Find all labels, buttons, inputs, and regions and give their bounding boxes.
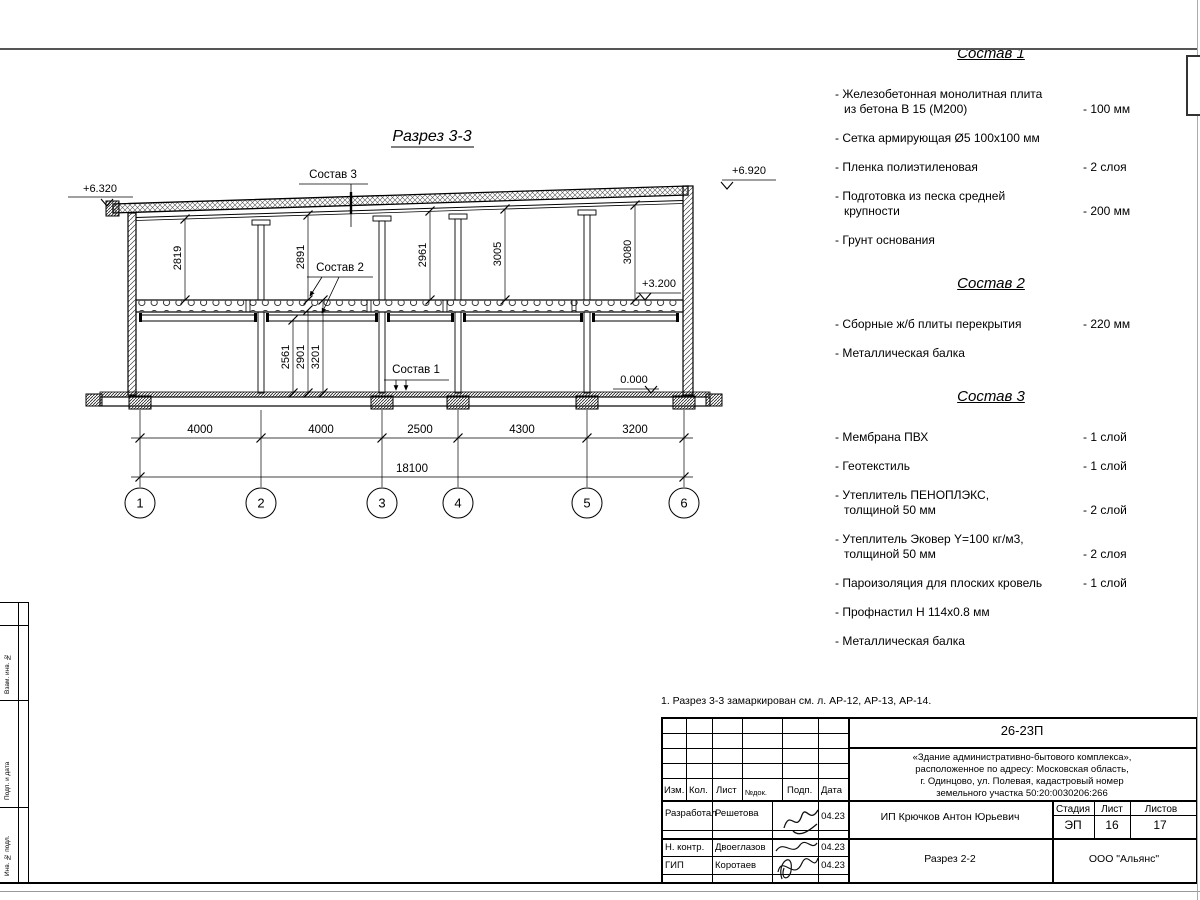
comp1-item-1: - Железобетонная монолитная плитаиз бето… bbox=[835, 87, 1147, 117]
frame-top bbox=[0, 48, 1197, 50]
stamp-podp: Подп. и дата bbox=[4, 708, 11, 800]
date-gip: 04.23 bbox=[818, 860, 848, 871]
axis-5: 5 bbox=[583, 496, 590, 511]
col-kol: Кол. bbox=[689, 785, 708, 796]
col-ndok: №док. bbox=[745, 787, 767, 798]
dim-2891: 2891 bbox=[295, 245, 307, 269]
elev-6320: +6.320 bbox=[83, 183, 117, 195]
drawing-sheet: Разрез 3-3 bbox=[0, 0, 1200, 900]
name-ncontrol: Двоеглазов bbox=[715, 842, 766, 853]
role-ncontrol: Н. контр. bbox=[665, 842, 704, 853]
col-izm: Изм. bbox=[664, 785, 684, 796]
axis-2: 2 bbox=[257, 496, 264, 511]
stamp-vzam: Взам. инв. № bbox=[4, 632, 11, 694]
axis-1: 1 bbox=[136, 496, 143, 511]
client: ИП Крючков Антон Юрьевич bbox=[848, 812, 1052, 823]
sheet-edge-right bbox=[1197, 0, 1198, 900]
date-developer: 04.23 bbox=[818, 811, 848, 822]
callout-sostav3: Состав 3 bbox=[309, 169, 357, 181]
sheets-value: 17 bbox=[1130, 820, 1190, 831]
role-gip: ГИП bbox=[665, 860, 684, 871]
signature-ncontrol-gip bbox=[772, 838, 820, 882]
doc-code: 26-23П bbox=[848, 725, 1196, 736]
drawing-title: Разрез 3-3 bbox=[392, 128, 471, 145]
dim-span-4: 4300 bbox=[509, 424, 535, 436]
comp1-item-5: - Грунт основания bbox=[835, 233, 1147, 248]
signature-developer bbox=[781, 802, 821, 837]
comp3-item-6: - Профнастил Н 114х0.8 мм bbox=[835, 605, 1147, 620]
sheet-value: 16 bbox=[1094, 820, 1130, 831]
stage-label: Стадия bbox=[1052, 804, 1094, 815]
composition-lists: Состав 1 - Железобетонная монолитная пли… bbox=[835, 44, 1147, 663]
dim-span-2: 4000 bbox=[308, 424, 334, 436]
roof bbox=[106, 186, 688, 221]
axis-6: 6 bbox=[680, 496, 687, 511]
dim-2901: 2901 bbox=[295, 345, 307, 369]
name-gip: Коротаев bbox=[715, 860, 756, 871]
axis-bubbles: 1 2 3 4 5 6 bbox=[125, 488, 699, 518]
comp1-title: Состав 1 bbox=[835, 44, 1147, 63]
col-podp: Подп. bbox=[787, 785, 812, 796]
span-dims: 4000 4000 2500 4300 3200 18100 bbox=[131, 410, 693, 487]
floor-slab bbox=[136, 300, 683, 312]
comp1-item-3: - Пленка полиэтиленовая- 2 слоя bbox=[835, 160, 1147, 175]
callout-sostav1: Состав 1 bbox=[392, 364, 440, 376]
comp1-item-2: - Сетка армирующая Ø5 100х100 мм bbox=[835, 131, 1147, 146]
drawing-name: Разрез 2-2 bbox=[848, 854, 1052, 865]
stamp-inv: Инв. № подл. bbox=[4, 814, 11, 876]
role-developer: Разработал bbox=[665, 808, 717, 819]
upper-dims: 2819 2891 2961 3005 3080 bbox=[172, 201, 640, 305]
dim-3201: 3201 bbox=[310, 345, 322, 369]
comp2-title: Состав 2 bbox=[835, 274, 1147, 293]
sheet-note: 1. Разрез 3-3 замаркирован см. л. АР-12,… bbox=[661, 695, 931, 707]
dim-span-3: 2500 bbox=[407, 424, 433, 436]
comp3-item-7: - Металлическая балка bbox=[835, 634, 1147, 649]
axis-3: 3 bbox=[378, 496, 385, 511]
comp1-item-4: - Подготовка из песка среднейкрупности -… bbox=[835, 189, 1147, 219]
sheet-label: Лист bbox=[1094, 804, 1130, 815]
corner-cell bbox=[1186, 55, 1200, 116]
comp3-item-1: - Мембрана ПВХ- 1 слой bbox=[835, 430, 1147, 445]
sheets-label: Листов bbox=[1130, 804, 1192, 815]
comp3-title: Состав 3 bbox=[835, 387, 1147, 406]
dim-3005: 3005 bbox=[492, 242, 504, 266]
project-description: «Здание административно-бытового комплек… bbox=[856, 752, 1188, 800]
stage-value: ЭП bbox=[1052, 820, 1094, 831]
elev-6920: +6.920 bbox=[732, 165, 766, 177]
sheet-edge-bottom bbox=[0, 891, 1200, 892]
dim-span-1: 4000 bbox=[187, 424, 213, 436]
dim-3080: 3080 bbox=[622, 240, 634, 264]
comp3-item-2: - Геотекстиль- 1 слой bbox=[835, 459, 1147, 474]
comp3-item-4: - Утеплитель Эковер Y=100 кг/м3,толщиной… bbox=[835, 532, 1147, 562]
dim-span-5: 3200 bbox=[622, 424, 648, 436]
elev-0000: 0.000 bbox=[620, 374, 648, 386]
title-block: 26-23П «Здание административно-бытового … bbox=[661, 717, 1198, 884]
frame-bottom bbox=[0, 882, 1197, 884]
floor-beams bbox=[139, 313, 679, 322]
comp3-item-3: - Утеплитель ПЕНОПЛЭКС,толщиной 50 мм - … bbox=[835, 488, 1147, 518]
comp2-item-2: - Металлическая балка bbox=[835, 346, 1147, 361]
ground-slab bbox=[86, 392, 722, 409]
dim-total: 18100 bbox=[396, 463, 428, 475]
dim-2961: 2961 bbox=[417, 243, 429, 267]
company: ООО "Альянс" bbox=[1052, 854, 1196, 865]
axis-4: 4 bbox=[454, 496, 461, 511]
comp3-item-5: - Пароизоляция для плоских кровель- 1 сл… bbox=[835, 576, 1147, 591]
name-developer: Решетова bbox=[715, 808, 759, 819]
comp2-item-1: - Сборные ж/б плиты перекрытия- 220 мм bbox=[835, 317, 1147, 332]
dim-2819: 2819 bbox=[172, 246, 184, 270]
elev-3200: +3.200 bbox=[642, 278, 676, 290]
date-ncontrol: 04.23 bbox=[818, 842, 848, 853]
section-drawing: Разрез 3-3 bbox=[0, 0, 800, 540]
col-data: Дата bbox=[821, 785, 842, 796]
callout-sostav2: Состав 2 bbox=[316, 262, 364, 274]
col-list: Лист bbox=[716, 785, 737, 796]
dim-2561: 2561 bbox=[280, 345, 292, 369]
